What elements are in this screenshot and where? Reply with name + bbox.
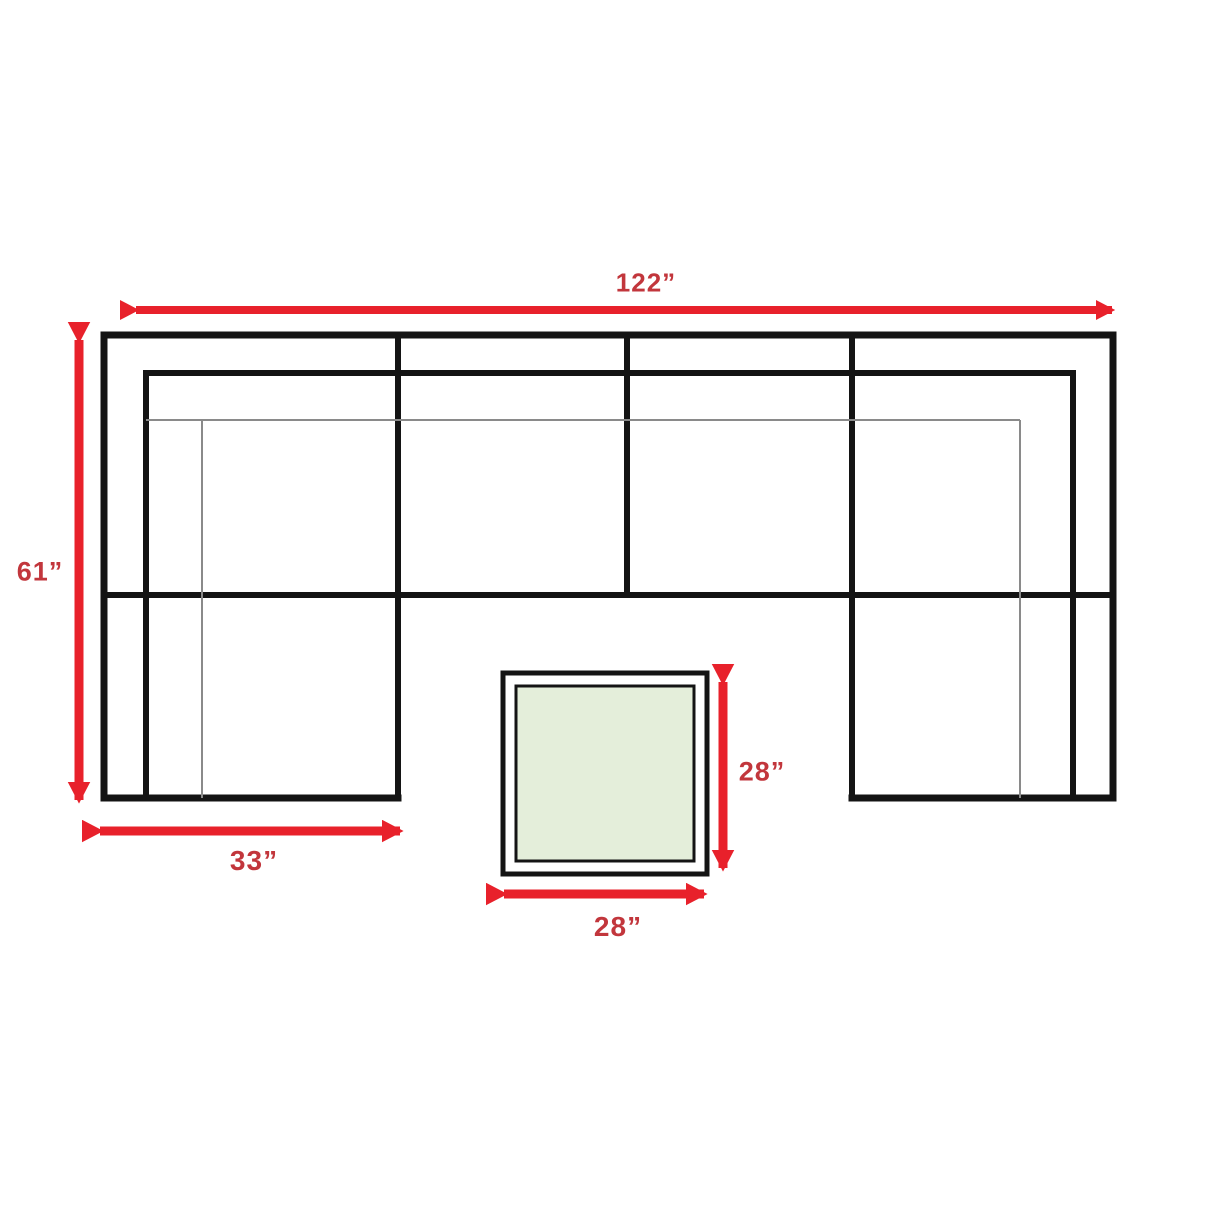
overall-depth-label: 61”: [17, 557, 64, 588]
coffee-table: [503, 673, 707, 874]
table-width-label: 28”: [594, 911, 642, 943]
sofa-dimension-diagram: 122” 61” 33” 28” 28”: [0, 0, 1214, 1214]
floorplan-svg: [0, 0, 1214, 1214]
table-depth-label: 28”: [739, 757, 786, 788]
coffee-table-top: [516, 686, 694, 861]
overall-width-label: 122”: [616, 268, 676, 299]
left-chaise-width-label: 33”: [230, 845, 278, 877]
